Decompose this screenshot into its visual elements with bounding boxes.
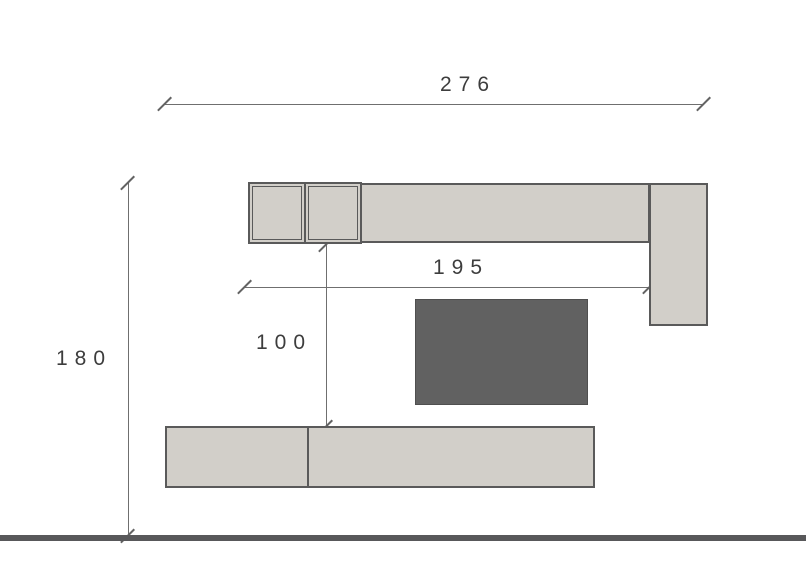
dimension-label-gap-height: 100 bbox=[256, 332, 312, 353]
tv-bench bbox=[165, 426, 595, 488]
tall-side-cabinet bbox=[649, 183, 708, 326]
dimension-line-upper-run-width bbox=[245, 287, 650, 288]
wall-cabinet-framed-2 bbox=[304, 182, 362, 244]
cabinet-door-frame bbox=[252, 186, 302, 240]
dimension-line-total-width bbox=[165, 104, 704, 105]
tv-panel bbox=[415, 299, 588, 405]
furniture-elevation-drawing: 276 180 195 100 bbox=[0, 0, 810, 564]
floor-line bbox=[0, 535, 806, 541]
wall-cabinet-framed-1 bbox=[248, 182, 306, 244]
dimension-line-gap-height bbox=[326, 240, 327, 427]
bench-section-divider bbox=[307, 428, 309, 486]
dimension-label-total-width: 276 bbox=[440, 74, 496, 95]
dimension-label-upper-run-width: 195 bbox=[433, 257, 489, 278]
dimension-line-total-height bbox=[128, 181, 129, 540]
cabinet-door-frame bbox=[308, 186, 358, 240]
wall-cabinet-long bbox=[360, 183, 650, 243]
dimension-label-total-height: 180 bbox=[56, 348, 112, 369]
